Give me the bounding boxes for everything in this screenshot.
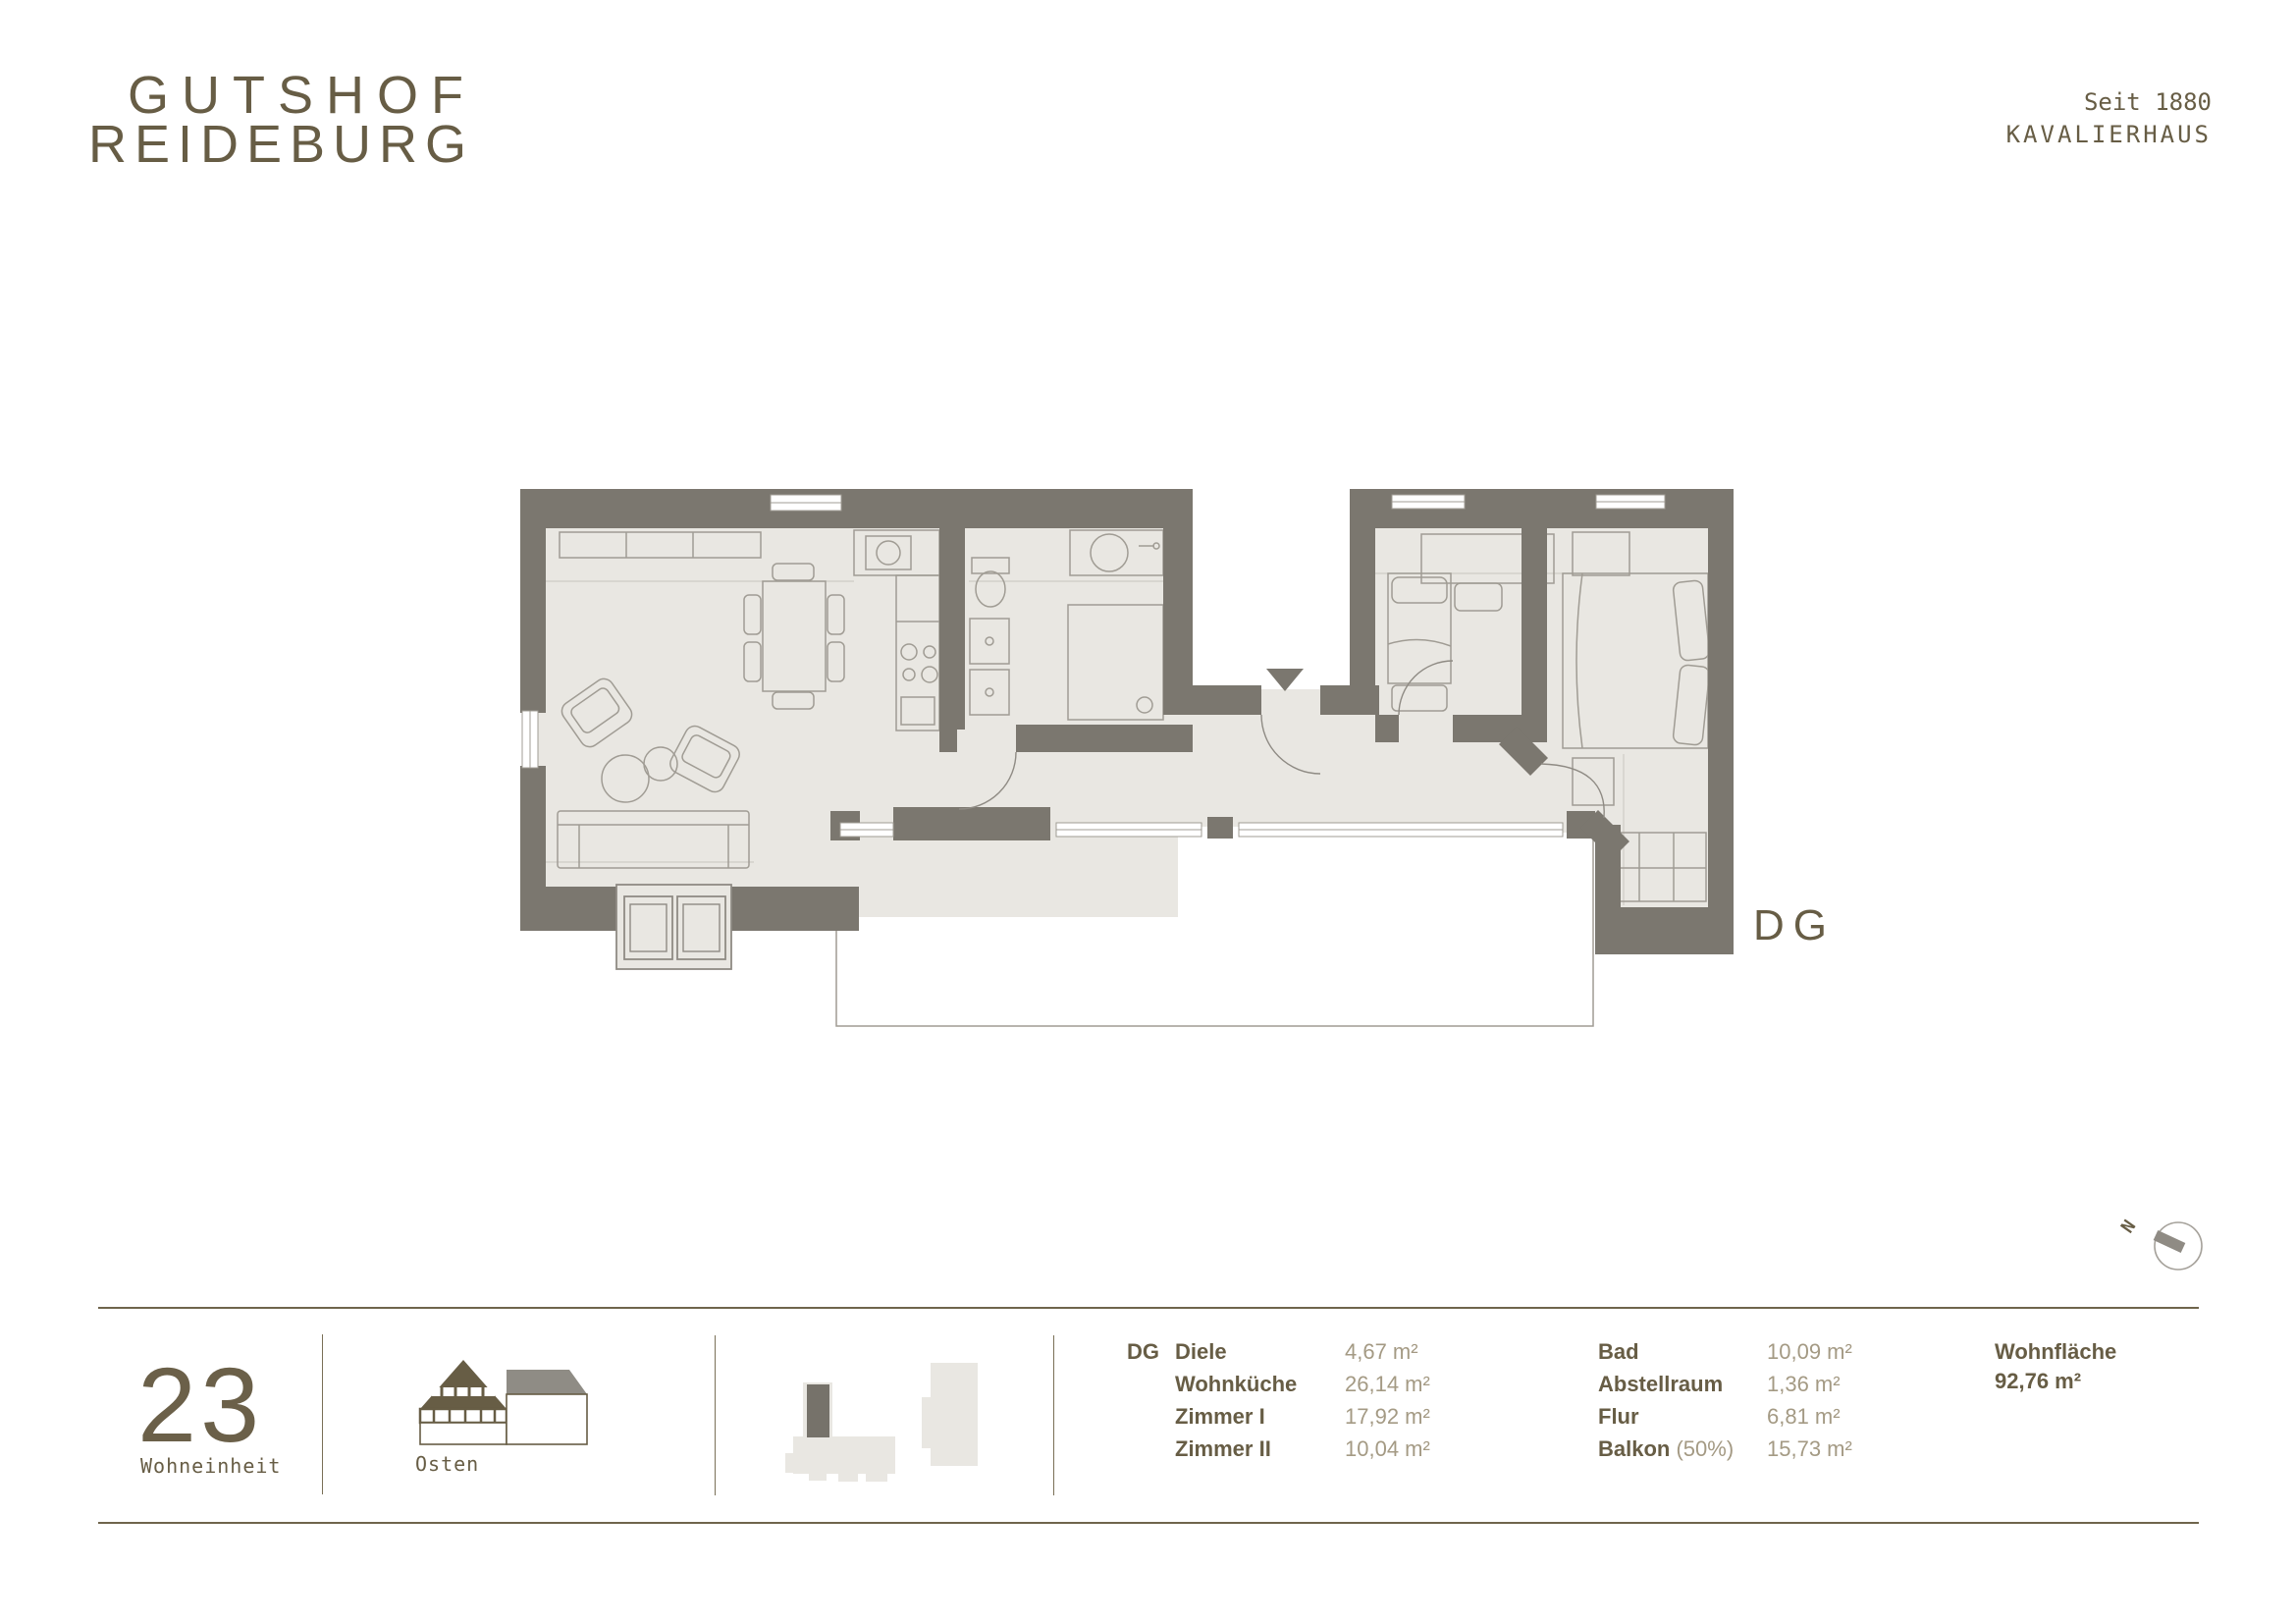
window [1239, 823, 1563, 837]
total-area-value: 92,76 m² [1995, 1369, 2081, 1394]
room-area: 10,04 m² [1345, 1436, 1430, 1462]
room-area: 26,14 m² [1345, 1372, 1430, 1397]
room-area: 4,67 m² [1345, 1339, 1418, 1365]
divider-line-bottom [98, 1522, 2199, 1524]
room-name: Wohnküche [1175, 1372, 1297, 1397]
floor-plan [520, 479, 1836, 1049]
siteplan-unit-highlight [807, 1384, 829, 1437]
divider-line-top [98, 1307, 2199, 1309]
entrance-marker [1266, 669, 1304, 691]
dormer-window [616, 885, 731, 969]
wall [939, 725, 957, 752]
table-floor-label: DG [1127, 1339, 1159, 1365]
wall [939, 528, 965, 730]
gable-roof [420, 1360, 507, 1409]
tagline-since: Seit 1880 [2006, 86, 2212, 119]
room-name: Balkon (50%) [1598, 1436, 1734, 1462]
total-area-label: Wohnfläche [1995, 1339, 2116, 1365]
tagline-building: KAVALIERHAUS [2006, 119, 2212, 151]
floor-label-dg: DG [1753, 901, 1836, 950]
wall [1375, 715, 1399, 742]
wall [1016, 725, 1193, 752]
room-name: Diele [1175, 1339, 1227, 1365]
room-area: 6,81 m² [1767, 1404, 1841, 1430]
room-name-qualifier: (50%) [1676, 1436, 1734, 1461]
orientation-label: Osten [415, 1452, 479, 1476]
wall [520, 489, 546, 713]
brand-logo: GUTSHOF REIDEBURG [88, 71, 520, 169]
building-elevation-icon [412, 1350, 594, 1448]
window [1056, 823, 1201, 837]
wall [1595, 907, 1734, 954]
room-name: Abstellraum [1598, 1372, 1723, 1397]
wall [1207, 817, 1233, 839]
room-area: 10,09 m² [1767, 1339, 1852, 1365]
wall [520, 489, 1193, 528]
wall [1522, 528, 1547, 725]
unit-label: Wohneinheit [140, 1454, 281, 1478]
wall [1163, 685, 1261, 715]
window [1392, 495, 1465, 509]
logo-line-1: GUTSHOF [128, 71, 520, 120]
wall [893, 807, 1050, 840]
wall [520, 887, 618, 931]
room-name: Zimmer II [1175, 1436, 1271, 1462]
siteplan-building-right [931, 1363, 978, 1466]
wall [1595, 825, 1621, 911]
room-area: 17,92 m² [1345, 1404, 1430, 1430]
floorplan-sheet: GUTSHOF REIDEBURG Seit 1880 KAVALIERHAUS [0, 0, 2296, 1624]
window [522, 711, 538, 768]
long-building-body [507, 1394, 587, 1444]
brand-tagline: Seit 1880 KAVALIERHAUS [2006, 86, 2212, 151]
unit-number: 23 [137, 1343, 263, 1466]
wall [1163, 489, 1193, 715]
room-area: 15,73 m² [1767, 1436, 1852, 1462]
room-area: 1,36 m² [1767, 1372, 1841, 1397]
gable-wall [420, 1423, 507, 1444]
footer-divider-2 [715, 1335, 716, 1495]
site-plan-icon [775, 1360, 1060, 1488]
window [1596, 495, 1665, 509]
room-name: Bad [1598, 1339, 1639, 1365]
window [771, 495, 841, 511]
logo-line-2: REIDEBURG [88, 120, 520, 169]
north-label: N [2117, 1217, 2140, 1237]
long-roof [507, 1370, 587, 1394]
room-name: Flur [1598, 1404, 1639, 1430]
wall [1350, 489, 1375, 715]
footer-divider-1 [322, 1334, 323, 1494]
siteplan-wing-horizontal [793, 1436, 895, 1474]
compass-icon: N [2110, 1203, 2218, 1291]
wall [1453, 715, 1547, 742]
window [840, 823, 893, 837]
wall [731, 887, 859, 931]
footer-divider-3 [1053, 1335, 1054, 1495]
room-name: Zimmer I [1175, 1404, 1265, 1430]
wall [1708, 489, 1734, 954]
